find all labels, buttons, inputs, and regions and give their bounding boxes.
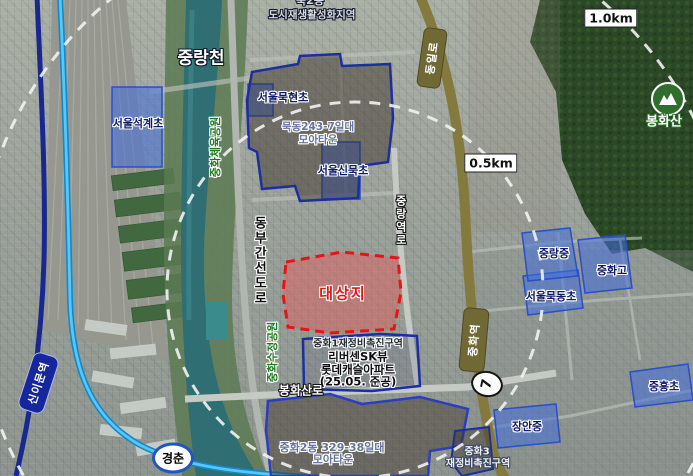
junghwa1-zone-label-line4: (25.05. 준공)	[320, 376, 396, 389]
school-label-seokgye: 서울석계초	[113, 118, 164, 130]
mukdong-moatown-label-line2: 모아타운	[299, 135, 338, 147]
target-site-label: 대상지	[319, 286, 366, 303]
riverside-courts	[206, 302, 228, 340]
park-label-sports: 중화체육공원	[210, 117, 222, 178]
school-label-jungheung: 중흥초	[649, 381, 679, 393]
road-label-dongbu-expressway: 동부간선도로	[251, 216, 266, 306]
school-label-jungnang-middle: 중랑중	[539, 248, 569, 260]
regen-district-label-line2: 도시재생활성화지역	[269, 10, 356, 22]
junghwa1-zone-label-line1: 중화1재정비촉진구역	[313, 338, 403, 349]
park-label-sujeong: 중화수정공원	[267, 322, 279, 383]
junghwa3-zone-label-line1: 중화3	[464, 446, 489, 457]
regen-district-label-line1: 묵2동	[296, 0, 324, 7]
school-label-sinmuk: 서울신묵초	[318, 165, 369, 177]
station-badge-junghwa-text: 중화역	[465, 323, 484, 358]
junghwa3-zone-label-line2: 재정비촉진구역	[446, 458, 510, 469]
river-label: 중랑천	[178, 49, 225, 68]
scale-label-1km: 1.0km	[584, 9, 637, 28]
road-label-bonghwasan-ro: 봉화산로	[279, 384, 323, 397]
route-7-number: 7	[478, 378, 496, 391]
station-badge-junghwa: 중화역	[458, 307, 489, 373]
junghwa2-moatown-label-line2: 모아타운	[313, 454, 353, 466]
gyeongchun-line-badge: 경춘	[152, 443, 194, 474]
gyeongchun-line-badge-text: 경춘	[162, 450, 184, 467]
road-badge-dongil-ro-text: 동일로	[422, 40, 442, 75]
mukdong-moatown-label-line1: 묵동243-7일대	[282, 122, 354, 134]
mountain-label: 봉화산	[646, 116, 682, 131]
map-canvas: 묵2동 도시재생활성화지역 중랑천 서울석계초 서울묵현초 묵동243-7일대 …	[0, 0, 693, 476]
school-label-junghwa-high: 중화고	[597, 265, 627, 277]
junghwa1-zone-label-line2: 리버센SK뷰	[328, 351, 388, 364]
road-label-jungnangyeok-ro: 중랑역로	[394, 195, 406, 247]
urban-patch	[468, 0, 560, 232]
mountain-icon	[651, 82, 685, 116]
scale-label-05km: 0.5km	[464, 154, 517, 173]
map-shapes	[0, 0, 693, 476]
junghwa2-moatown-outline	[266, 394, 468, 476]
school-label-mukhyeon: 서울묵현초	[258, 92, 309, 104]
school-label-jangan-middle: 장안중	[512, 421, 542, 433]
school-label-mukdong: 서울묵동초	[526, 291, 577, 303]
